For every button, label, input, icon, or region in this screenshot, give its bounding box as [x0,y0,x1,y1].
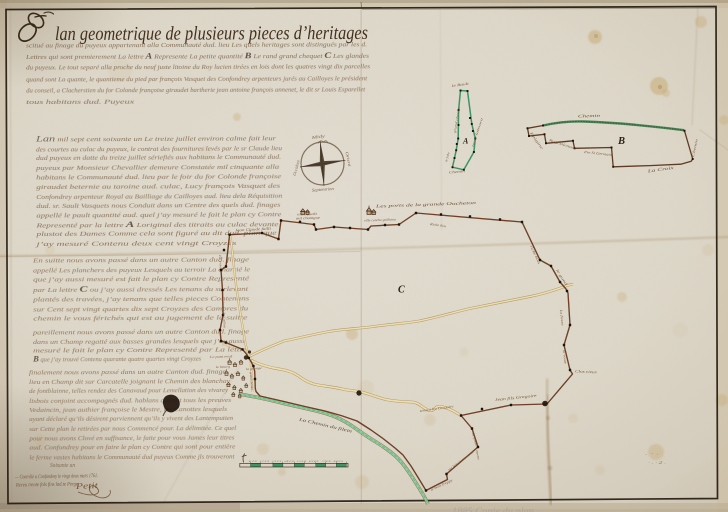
svg-text:finalement nous avons passé da: finalement nous avons passé dans un autr… [29,368,227,376]
svg-text:Soixante un: Soixante un [50,463,75,469]
svg-text:sur Cent sept vingt quartes di: sur Cent sept vingt quartes dix sept Cro… [33,306,248,313]
svg-text:appellé le pault quantité aud.: appellé le pault quantité aud. quel j’ay… [36,211,282,219]
svg-text:mesuré le fait le plan cy Cont: mesuré le fait le plan cy Contre Represe… [33,346,248,354]
svg-text:pour nous avons Clové en suffi: pour nous avons Clové en suffisance, le … [28,434,235,442]
svg-text:C: C [398,285,405,296]
svg-text:Chemin: Chemin [578,113,600,119]
svg-text:lisbois conjoint accompagnés d: lisbois conjoint accompagnés dud. hablan… [29,398,232,405]
svg-text:puyeux par Monsieur Chevallier: puyeux par Monsieur Chevallier demeure C… [35,165,280,172]
svg-text:· . · 2 .: · . · 2 . [648,460,666,465]
svg-text:A: A [462,137,469,146]
svg-text:. · .: . · . [645,451,659,456]
svg-text:que j’ay aussi mesuré est fait: que j’ay aussi mesuré est fait le plan c… [33,276,250,284]
svg-text:— Contrôlé a Confondrey le vin: — Contrôlé a Confondrey le vingt deux ma… [14,472,98,480]
svg-text:dud puyeux en datte du treize: dud puyeux en datte du treize juillet sé… [36,154,281,162]
svg-text:le ferme vastes habitans le Co: le ferme vastes habitans le Communauté d… [29,453,234,461]
svg-text:10 20 30 40 50 60: 10 20 30 40 50 60 70 80 [247,460,346,463]
svg-text:habitans le Communauté dud. li: habitans le Communauté dud. lieu par le … [36,173,282,181]
svg-text:j’ay mesuré Contenu deux cent: j’ay mesuré Contenu deux cent vingt Croy… [35,241,238,248]
svg-text:dans un Champ regatté aux bass: dans un Champ regatté aux basses grandes… [33,339,246,346]
svg-text:lieu en Champ dit sur Carcatel: lieu en Champ dit sur Carcatelle joignan… [29,379,231,386]
svg-text:Confondrey arpenteur Royal au: Confondrey arpenteur Royal au Bailliage … [36,193,282,201]
svg-text:tous habitans dud. Puyeux: tous habitans dud. Puyeux [26,100,134,106]
svg-text:de fontblainne, telles rendez: de fontblainne, telles rendez des Canava… [29,387,228,395]
svg-text:quand sont La quante, le quant: quand sont La quante, le quantieme du pi… [26,75,367,83]
svg-text:En suitte nous avons passé dan: En suitte nous avons passé dans un autre… [31,256,249,264]
svg-text:1885 Copie du plan: 1885 Copie du plan [452,507,534,512]
svg-text:ayant déclaré qu’ils désirent: ayant déclaré qu’ils désirent parviennen… [29,416,233,423]
svg-text:chemin le vous férichés qui es: chemin le vous férichés qui est au jugem… [33,314,248,322]
svg-text:Vedaincin, jean authier franço: Vedaincin, jean authier françoise le Mes… [29,406,228,414]
svg-text:Petit: Petit [74,480,99,491]
svg-text:des courtes au culac du puyeux: des courtes au culac du puyeux, le contr… [36,145,282,153]
svg-text:B: B [617,136,625,147]
svg-text:dud. sr. Sault Vasquets nous C: dud. sr. Sault Vasquets nous Conduit dan… [36,202,281,210]
svg-text:plantés des travées, j’ay tena: plantés des travées, j’ay tenans que tel… [32,296,251,303]
svg-text:le bourg: le bourg [216,364,231,369]
svg-text:du puyeux. Le tout separé alla: du puyeux. Le tout separé alla proche du… [26,63,371,71]
svg-text:aud. Confondrey pour en faire: aud. Confondrey pour en faire le plan cy… [29,444,236,452]
svg-text:giraudet beternie au taroine a: giraudet beternie au taroine aud. culac,… [36,183,281,191]
svg-text:pareillement nous avons passé: pareillement nous avons passé dans un au… [32,328,250,336]
svg-text:Receu trente fols fins lad.te: Receu trente fols fins lad.te Perge [15,480,78,488]
svg-text:sur Cette plan le retirées par: sur Cette plan le retirées par nous Comm… [29,426,236,433]
svg-text:appellé Les planchers des puye: appellé Les planchers des puyeux Lesquel… [33,267,251,274]
svg-text:du conseil, a Clacherstien du: du conseil, a Clacherstien du for Colond… [26,86,365,94]
svg-text:Clos vieux: Clos vieux [575,370,598,375]
svg-text:scitué au finage du puyeux app: scitué au finage du puyeux appartenant a… [26,41,367,49]
